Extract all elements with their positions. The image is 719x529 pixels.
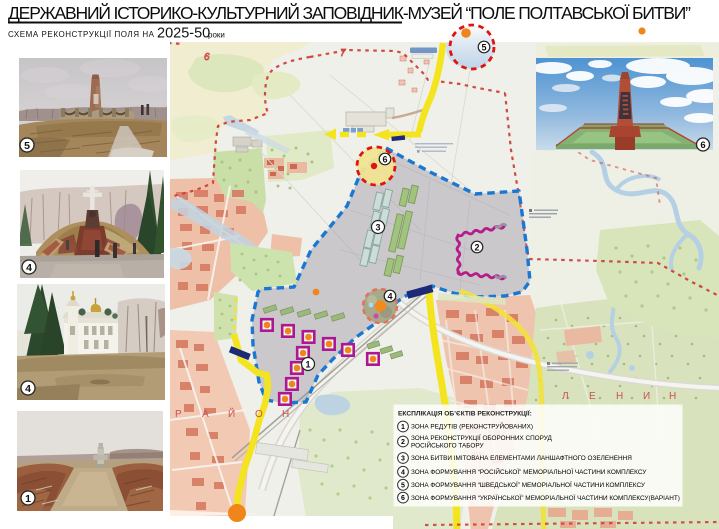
svg-text:1: 1 bbox=[25, 493, 31, 505]
svg-text:1: 1 bbox=[305, 359, 310, 369]
svg-text:роки: роки bbox=[208, 31, 225, 40]
svg-text:2: 2 bbox=[401, 439, 405, 446]
svg-text:А: А bbox=[202, 409, 209, 420]
svg-text:Й: Й bbox=[228, 407, 235, 420]
svg-text:И: И bbox=[643, 391, 650, 402]
svg-text:Р: Р bbox=[175, 409, 182, 420]
svg-text:7: 7 bbox=[340, 48, 346, 59]
svg-text:2: 2 bbox=[474, 242, 479, 252]
svg-text:4: 4 bbox=[387, 291, 392, 301]
svg-text:ЗОНА ФОРМУВАННЯ “УКРАЇНСЬКОЇ”: ЗОНА ФОРМУВАННЯ “УКРАЇНСЬКОЇ” МЕМОРІАЛЬН… bbox=[411, 494, 680, 502]
svg-text:3: 3 bbox=[401, 456, 405, 463]
svg-text:3: 3 bbox=[375, 222, 380, 232]
svg-text:5: 5 bbox=[24, 140, 30, 152]
svg-text:Н: Н bbox=[282, 409, 289, 420]
svg-text:5: 5 bbox=[401, 482, 405, 489]
svg-text:2025-50: 2025-50 bbox=[157, 26, 210, 42]
svg-text:ЗОНА РЕКОНСТРУКЦІЇ ОБОРОННИХ С: ЗОНА РЕКОНСТРУКЦІЇ ОБОРОННИХ СПОРУД bbox=[411, 434, 553, 442]
svg-text:Н: Н bbox=[616, 391, 623, 402]
svg-text:6: 6 bbox=[204, 52, 210, 63]
svg-text:О: О bbox=[255, 409, 263, 420]
svg-text:4: 4 bbox=[26, 262, 32, 274]
svg-text:5: 5 bbox=[481, 42, 486, 52]
svg-text:6: 6 bbox=[401, 495, 405, 502]
svg-text:Л: Л bbox=[562, 391, 569, 402]
svg-text:6: 6 bbox=[700, 140, 705, 151]
svg-text:4: 4 bbox=[401, 469, 405, 476]
svg-text:ЗОНА РЕДУТІВ (РЕКОНСТРУЙОВАНИХ: ЗОНА РЕДУТІВ (РЕКОНСТРУЙОВАНИХ) bbox=[411, 422, 533, 431]
svg-text:Е: Е bbox=[589, 391, 596, 402]
svg-text:ДЕРЖАВНИЙ ІСТОРИКО-КУЛЬТУРНИЙ: ДЕРЖАВНИЙ ІСТОРИКО-КУЛЬТУРНИЙ ЗАПОВІДНИК… bbox=[8, 2, 691, 23]
svg-text:6: 6 bbox=[382, 154, 387, 164]
svg-text:СХЕМА РЕКОНСТРУКЦІЇ ПОЛЯ НА: СХЕМА РЕКОНСТРУКЦІЇ ПОЛЯ НА bbox=[8, 30, 155, 39]
svg-text:4: 4 bbox=[25, 383, 31, 395]
svg-text:1: 1 bbox=[401, 424, 405, 431]
svg-text:ЕКСПЛІКАЦІЯ ОБ’ЄКТІВ РЕКОНСТРУ: ЕКСПЛІКАЦІЯ ОБ’ЄКТІВ РЕКОНСТРУКЦІЇ: bbox=[398, 410, 532, 418]
svg-text:ЗОНА ФОРМУВАННЯ “ШВЕДСЬКОЇ” МЕ: ЗОНА ФОРМУВАННЯ “ШВЕДСЬКОЇ” МЕМОРІАЛЬНОЇ… bbox=[411, 481, 646, 489]
svg-text:Н: Н bbox=[669, 391, 676, 402]
svg-text:ЗОНА ФОРМУВАННЯ “РОСІЙСЬКОЇ” М: ЗОНА ФОРМУВАННЯ “РОСІЙСЬКОЇ” МЕМОРІАЛЬНО… bbox=[411, 467, 647, 476]
svg-text:РОСІЙСЬКОГО ТАБОРУ: РОСІЙСЬКОГО ТАБОРУ bbox=[411, 440, 485, 449]
svg-text:ЗОНА БИТВИ ІМІТОВАНА ЕЛЕМЕНТАМ: ЗОНА БИТВИ ІМІТОВАНА ЕЛЕМЕНТАМИ ЛАНШАФТН… bbox=[411, 455, 632, 462]
